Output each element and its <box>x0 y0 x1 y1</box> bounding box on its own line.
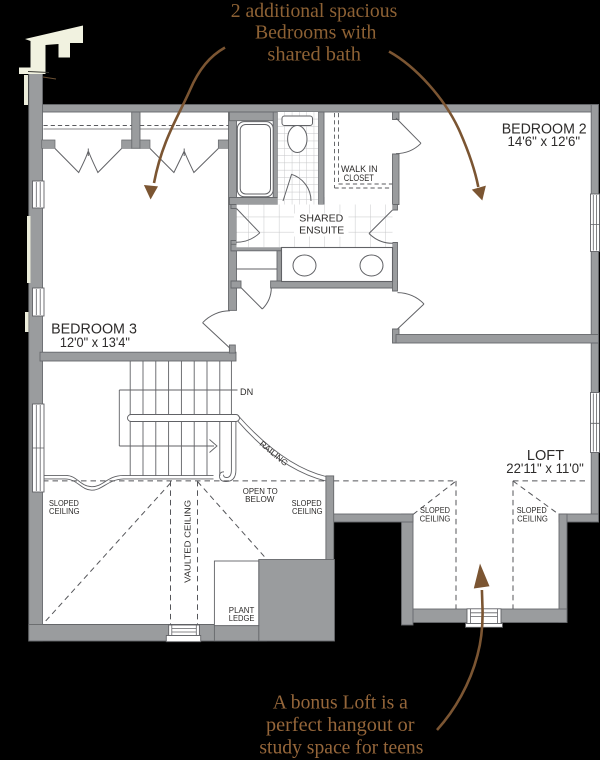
svg-text:BELOW: BELOW <box>245 495 275 504</box>
svg-text:CEILING: CEILING <box>49 507 80 516</box>
svg-text:study space for teens: study space for teens <box>259 737 423 759</box>
svg-text:14'6" x 12'6": 14'6" x 12'6" <box>508 134 581 150</box>
svg-text:CEILING: CEILING <box>420 514 451 523</box>
svg-text:CLOSET: CLOSET <box>344 173 374 184</box>
svg-text:22'11" x 11'0": 22'11" x 11'0" <box>506 461 584 477</box>
svg-text:LEDGE: LEDGE <box>229 614 255 623</box>
svg-text:A bonus Loft is a: A bonus Loft is a <box>273 692 408 714</box>
svg-text:CEILING: CEILING <box>292 507 323 516</box>
svg-text:ENSUITE: ENSUITE <box>299 225 344 236</box>
svg-text:SHARED: SHARED <box>299 213 343 224</box>
svg-text:12'0" x 13'4": 12'0" x 13'4" <box>60 335 130 351</box>
svg-text:perfect hangout or: perfect hangout or <box>266 714 415 736</box>
svg-text:DN: DN <box>240 387 253 397</box>
svg-text:shared bath: shared bath <box>267 43 361 65</box>
svg-text:2 additional spacious: 2 additional spacious <box>231 0 398 22</box>
svg-text:Bedrooms with: Bedrooms with <box>255 22 377 44</box>
svg-text:CEILING: CEILING <box>517 514 548 523</box>
svg-text:VAULTED CEILING: VAULTED CEILING <box>183 500 192 583</box>
